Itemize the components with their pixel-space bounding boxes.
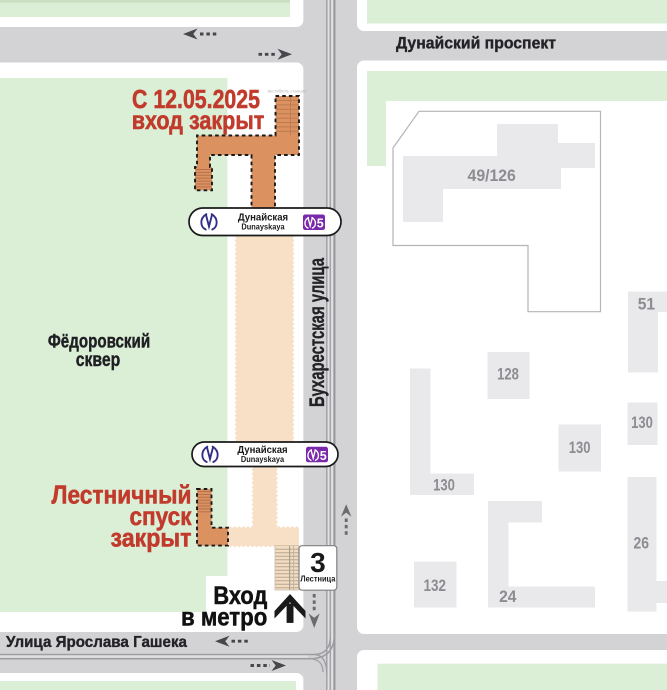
svg-text:49/126: 49/126 bbox=[468, 166, 516, 185]
svg-text:5: 5 bbox=[320, 449, 327, 463]
svg-text:51: 51 bbox=[638, 296, 655, 314]
svg-text:130: 130 bbox=[631, 414, 653, 432]
svg-text:в метро: в метро bbox=[181, 604, 267, 632]
svg-text:Dunayskaya: Dunayskaya bbox=[241, 222, 285, 231]
svg-text:сквер: сквер bbox=[76, 350, 121, 371]
svg-text:26: 26 bbox=[634, 535, 650, 553]
svg-text:вестибюль станции: вестибюль станции bbox=[268, 89, 307, 94]
svg-text:закрыт: закрыт bbox=[111, 523, 192, 553]
svg-text:Dunayskaya: Dunayskaya bbox=[241, 455, 285, 464]
svg-text:132: 132 bbox=[424, 577, 447, 595]
svg-text:вход закрыт: вход закрыт bbox=[132, 105, 265, 135]
svg-text:3: 3 bbox=[310, 547, 326, 578]
svg-text:Бухарестская улица: Бухарестская улица bbox=[305, 257, 329, 407]
svg-text:Дунайский проспект: Дунайский проспект bbox=[396, 35, 556, 53]
svg-text:Улица Ярослава Гашека: Улица Ярослава Гашека bbox=[6, 634, 187, 651]
svg-text:24: 24 bbox=[499, 588, 517, 606]
svg-text:Лестница: Лестница bbox=[300, 575, 336, 584]
svg-text:130: 130 bbox=[569, 439, 591, 457]
svg-text:128: 128 bbox=[497, 366, 519, 384]
svg-text:5: 5 bbox=[317, 217, 324, 231]
svg-text:130: 130 bbox=[433, 477, 455, 495]
